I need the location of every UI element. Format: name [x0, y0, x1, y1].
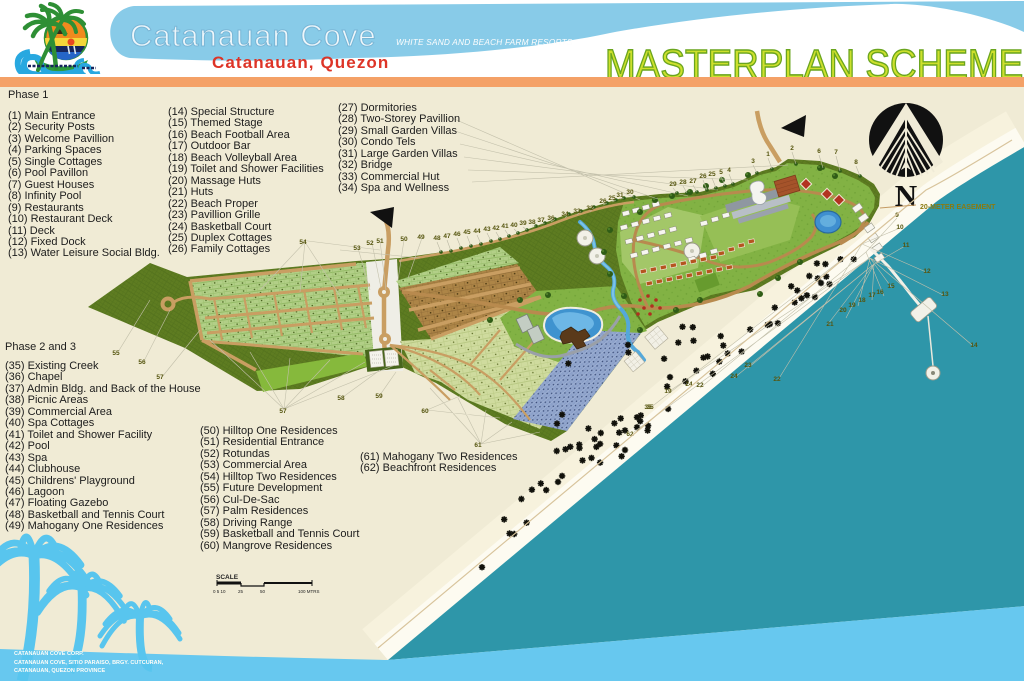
svg-text:14: 14 [970, 342, 978, 349]
svg-text:34: 34 [561, 211, 569, 218]
svg-text:37: 37 [537, 217, 545, 224]
svg-text:23: 23 [744, 362, 752, 369]
svg-text:32: 32 [586, 205, 594, 212]
svg-text:35: 35 [646, 404, 654, 411]
svg-text:20: 20 [839, 307, 847, 314]
svg-text:33: 33 [573, 208, 581, 215]
svg-text:28: 28 [679, 179, 687, 186]
svg-text:21: 21 [826, 321, 834, 328]
svg-text:60: 60 [421, 408, 429, 415]
svg-text:N: N [895, 178, 917, 213]
svg-text:SCALE: SCALE [216, 574, 239, 581]
svg-text:26: 26 [599, 198, 607, 205]
svg-text:18: 18 [858, 297, 866, 304]
svg-text:25: 25 [708, 171, 716, 178]
svg-text:26: 26 [699, 173, 707, 180]
svg-text:47: 47 [443, 233, 451, 240]
svg-text:53: 53 [353, 245, 361, 252]
svg-text:7: 7 [834, 149, 838, 156]
svg-text:41: 41 [501, 223, 509, 230]
svg-text:19: 19 [848, 302, 856, 309]
svg-text:10: 10 [896, 224, 904, 231]
svg-text:36: 36 [547, 215, 555, 222]
svg-text:50: 50 [260, 589, 266, 594]
svg-text:22: 22 [773, 376, 781, 383]
svg-text:29: 29 [669, 181, 677, 188]
svg-text:15: 15 [887, 283, 895, 290]
svg-text:16: 16 [876, 289, 884, 296]
svg-text:5: 5 [719, 169, 723, 176]
svg-text:20-METER EASEMENT: 20-METER EASEMENT [920, 204, 996, 211]
svg-text:17: 17 [868, 292, 876, 299]
svg-text:25: 25 [238, 589, 244, 594]
svg-text:52: 52 [366, 240, 374, 247]
svg-text:8: 8 [854, 159, 858, 166]
svg-text:46: 46 [453, 231, 461, 238]
svg-text:58: 58 [337, 395, 345, 402]
svg-text:50: 50 [400, 236, 408, 243]
svg-text:59: 59 [375, 393, 383, 400]
svg-text:27: 27 [689, 178, 697, 185]
svg-text:25: 25 [608, 195, 616, 202]
svg-text:61: 61 [474, 442, 482, 449]
svg-text:24: 24 [730, 373, 738, 380]
svg-text:12: 12 [923, 268, 931, 275]
svg-text:2: 2 [790, 145, 794, 152]
svg-text:39: 39 [519, 220, 527, 227]
svg-text:51: 51 [376, 238, 384, 245]
svg-text:19: 19 [664, 388, 672, 395]
svg-text:57: 57 [279, 408, 287, 415]
svg-text:55: 55 [112, 350, 120, 357]
svg-text:0 5 10: 0 5 10 [213, 589, 226, 594]
svg-text:1: 1 [766, 151, 770, 158]
svg-text:44: 44 [473, 228, 481, 235]
svg-text:11: 11 [903, 242, 910, 249]
svg-text:40: 40 [510, 222, 518, 229]
svg-text:48: 48 [433, 235, 441, 242]
svg-text:4: 4 [727, 167, 731, 174]
svg-text:49: 49 [417, 234, 425, 241]
svg-text:13: 13 [941, 291, 949, 298]
svg-text:100 MTRS: 100 MTRS [298, 589, 320, 594]
svg-text:42: 42 [492, 225, 500, 232]
svg-text:45: 45 [463, 229, 471, 236]
svg-text:31: 31 [616, 192, 624, 199]
svg-text:38: 38 [528, 219, 536, 226]
svg-text:22: 22 [696, 382, 704, 389]
svg-text:6: 6 [817, 148, 821, 155]
svg-text:24: 24 [685, 381, 693, 388]
svg-text:3: 3 [751, 158, 755, 165]
svg-text:43: 43 [483, 226, 491, 233]
svg-text:30: 30 [626, 189, 634, 196]
